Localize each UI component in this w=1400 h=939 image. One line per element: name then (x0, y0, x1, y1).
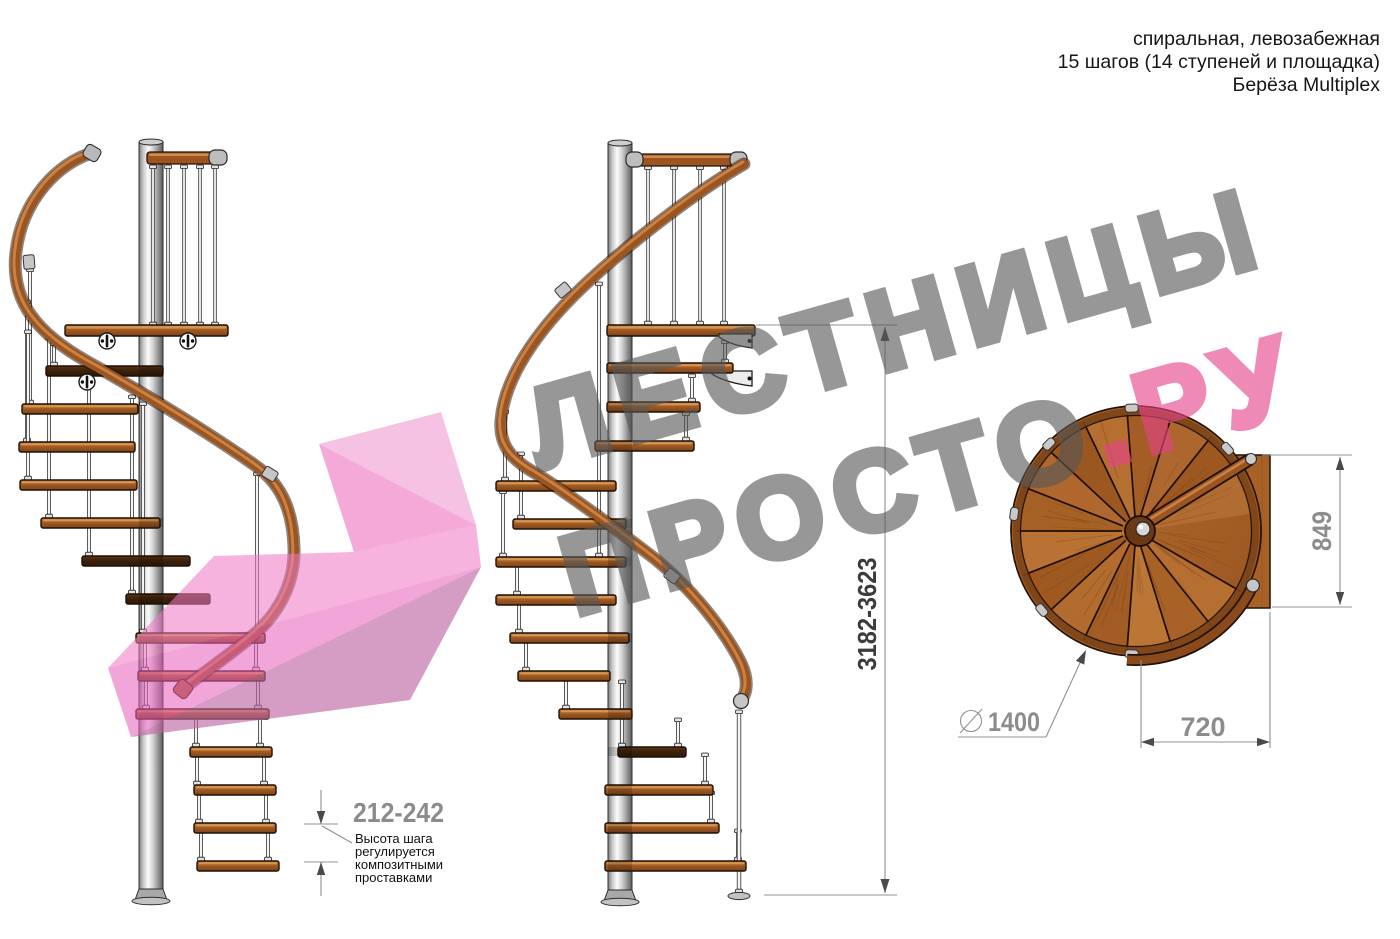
svg-text:1400: 1400 (988, 707, 1040, 737)
svg-text:212-242: 212-242 (353, 797, 444, 828)
svg-text:720: 720 (1180, 712, 1225, 742)
svg-text:849: 849 (1307, 511, 1337, 551)
svg-text:спиральная, левозабежная: спиральная, левозабежная (1133, 28, 1380, 50)
svg-text:проставками: проставками (355, 870, 432, 885)
svg-text:15 шагов (14 ступеней и площад: 15 шагов (14 ступеней и площадка) (1058, 51, 1380, 73)
svg-text:Берёза Multiplex: Берёза Multiplex (1233, 74, 1381, 96)
svg-text:3182-3623: 3182-3623 (852, 558, 882, 671)
